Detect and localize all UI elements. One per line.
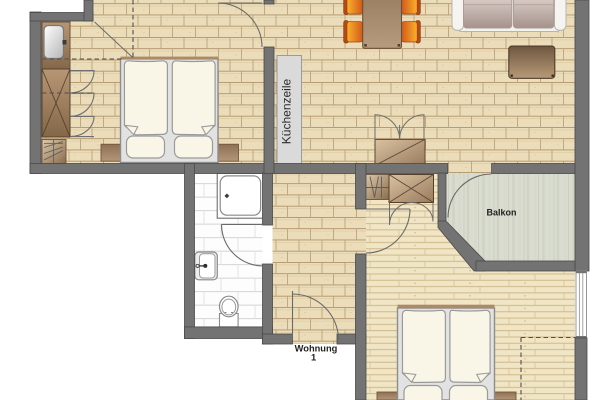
svg-text:Balkon: Balkon <box>486 208 516 218</box>
svg-text:Küchenzeile: Küchenzeile <box>280 78 294 144</box>
svg-text:1: 1 <box>311 353 316 363</box>
